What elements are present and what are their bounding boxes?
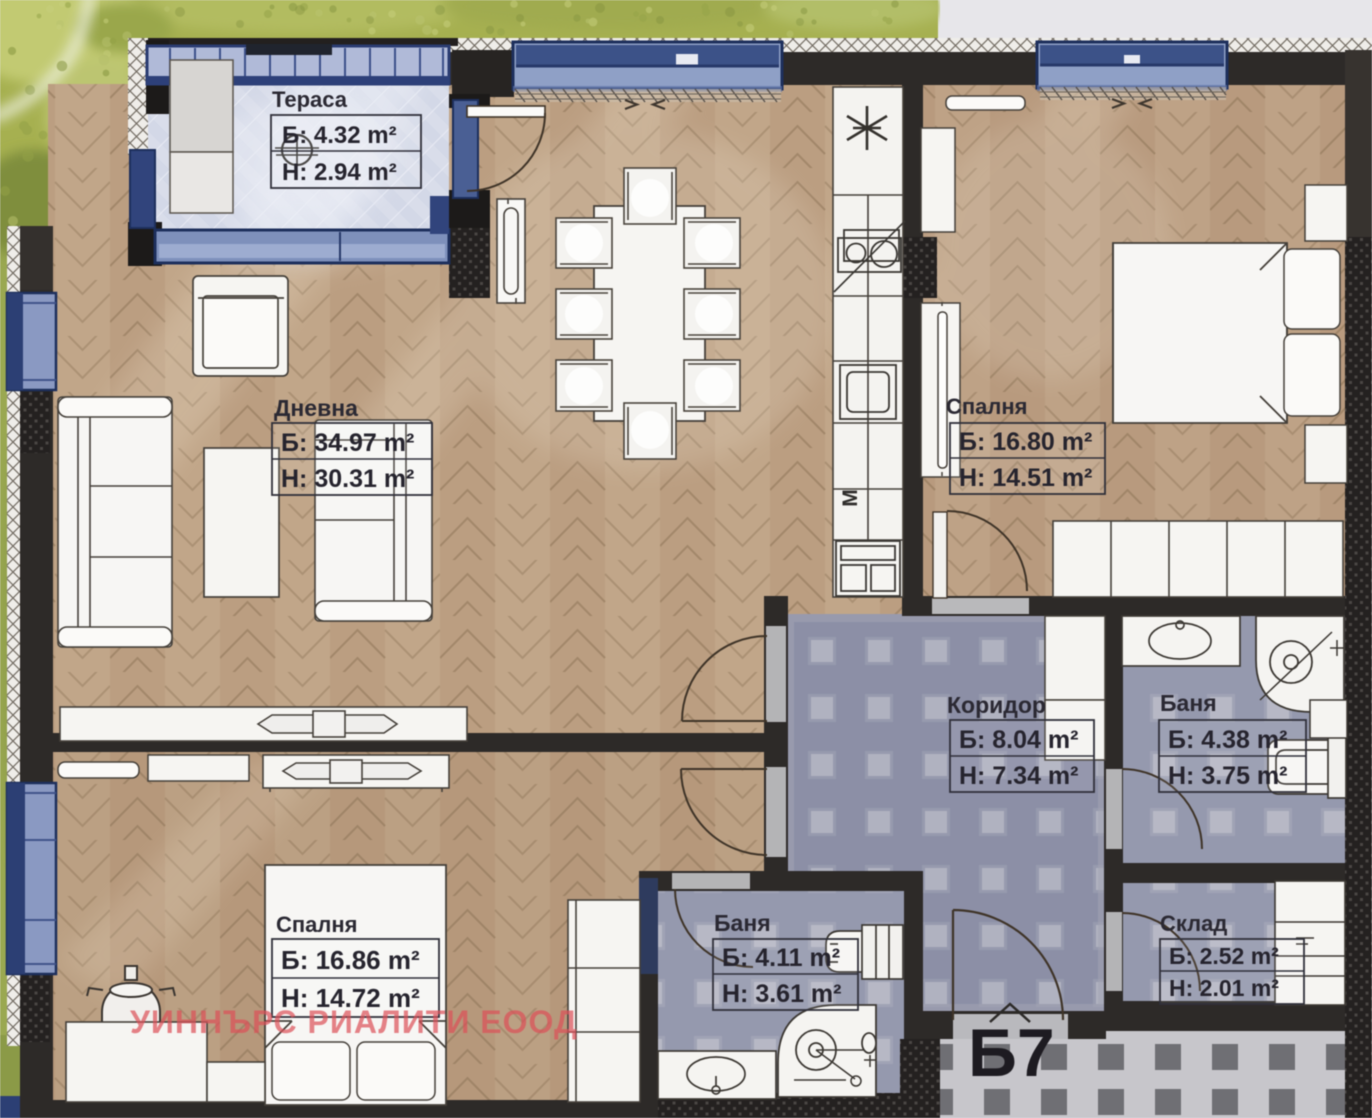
svg-text:M: M — [839, 489, 862, 507]
svg-text:Дневна: Дневна — [274, 395, 358, 421]
svg-text:Н: 3.75 m²: Н: 3.75 m² — [1168, 762, 1287, 790]
svg-text:Н: 7.34 m²: Н: 7.34 m² — [959, 762, 1078, 790]
svg-text:УИННЪРС РИАЛИТИ ЕООД: УИННЪРС РИАЛИТИ ЕООД — [130, 1004, 578, 1040]
svg-text:Н: 2.01 m²: Н: 2.01 m² — [1169, 975, 1279, 1001]
svg-text:Б: 4.38 m²: Б: 4.38 m² — [1168, 726, 1287, 754]
svg-text:Б: 4.11 m²: Б: 4.11 m² — [722, 944, 840, 972]
svg-text:Баня: Баня — [714, 910, 771, 936]
svg-text:Склад: Склад — [1160, 911, 1227, 936]
svg-text:Н: 30.31 m²: Н: 30.31 m² — [281, 465, 414, 493]
svg-text:Б: 2.52 m²: Б: 2.52 m² — [1169, 943, 1279, 969]
svg-text:Баня: Баня — [1160, 690, 1217, 716]
svg-text:Б: 16.80 m²: Б: 16.80 m² — [959, 428, 1092, 456]
svg-text:Б: 8.04 m²: Б: 8.04 m² — [959, 726, 1078, 754]
svg-text:Коридор: Коридор — [947, 692, 1046, 718]
svg-text:Н: 2.94 m²: Н: 2.94 m² — [282, 159, 397, 186]
svg-text:Н: 3.61 m²: Н: 3.61 m² — [722, 980, 841, 1008]
svg-text:Б7: Б7 — [968, 1015, 1055, 1091]
svg-text:Спалня: Спалня — [946, 394, 1028, 419]
svg-text:Б: 34.97 m²: Б: 34.97 m² — [281, 429, 414, 457]
svg-text:Б: 16.86 m²: Б: 16.86 m² — [281, 945, 420, 975]
svg-text:Тераса: Тераса — [272, 87, 348, 112]
svg-text:Спалня: Спалня — [276, 912, 358, 937]
svg-text:Б: 4.32 m²: Б: 4.32 m² — [282, 122, 397, 149]
svg-text:Н: 14.51 m²: Н: 14.51 m² — [959, 464, 1092, 492]
